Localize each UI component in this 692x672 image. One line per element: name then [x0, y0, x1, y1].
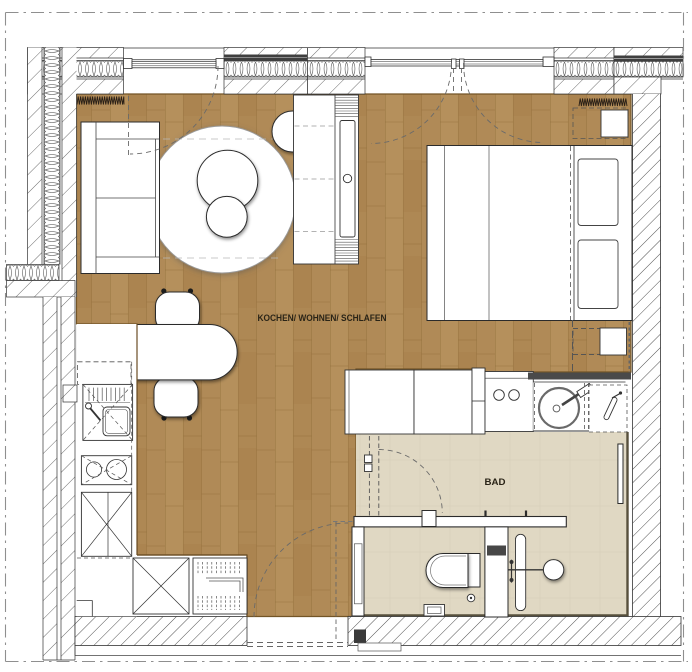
svg-text:KOCHEN/ WOHNEN/ SCHLAFEN: KOCHEN/ WOHNEN/ SCHLAFEN: [258, 313, 387, 323]
svg-text:BAD: BAD: [485, 477, 506, 488]
